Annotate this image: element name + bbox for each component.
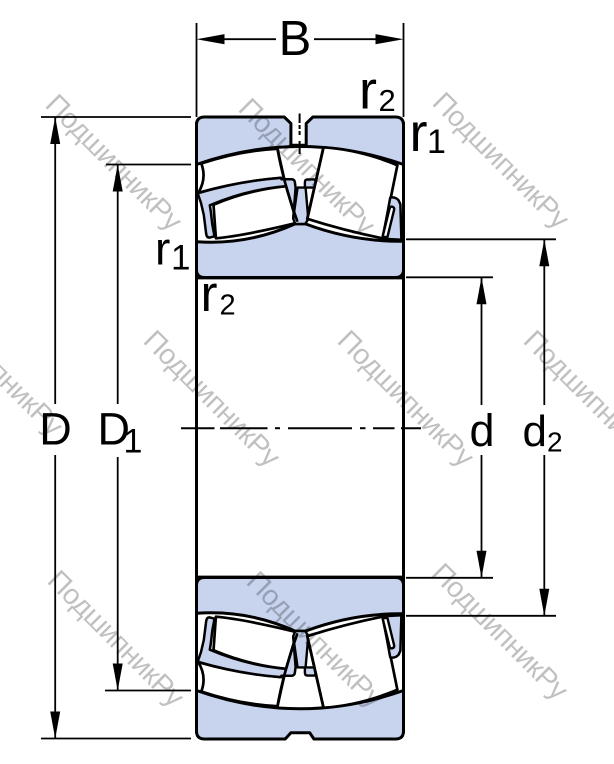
svg-text:r: r: [201, 265, 218, 322]
svg-text:r: r: [359, 61, 377, 121]
svg-text:2: 2: [220, 290, 236, 322]
svg-text:r: r: [155, 222, 170, 274]
svg-text:2: 2: [379, 83, 396, 118]
svg-text:2: 2: [547, 427, 563, 458]
svg-text:d: d: [469, 405, 494, 456]
svg-text:B: B: [279, 12, 312, 66]
svg-text:d: d: [523, 407, 547, 456]
svg-text:1: 1: [171, 239, 190, 278]
svg-text:1: 1: [427, 123, 446, 161]
svg-text:D: D: [39, 404, 72, 455]
svg-text:r: r: [410, 103, 428, 163]
svg-text:1: 1: [124, 423, 143, 461]
